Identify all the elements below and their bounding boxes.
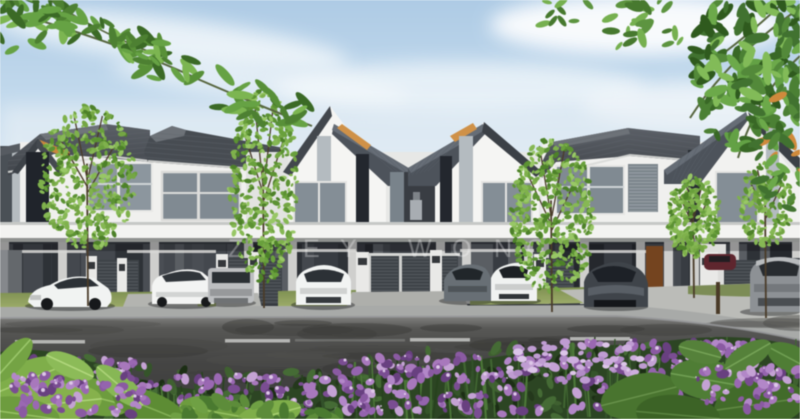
svg-text:E: E bbox=[303, 235, 320, 263]
svg-text:Z: Z bbox=[228, 235, 243, 263]
svg-text:O: O bbox=[452, 235, 471, 263]
svg-text:N: N bbox=[494, 235, 512, 263]
svg-text:Y: Y bbox=[340, 235, 357, 263]
svg-text:W: W bbox=[408, 235, 432, 263]
